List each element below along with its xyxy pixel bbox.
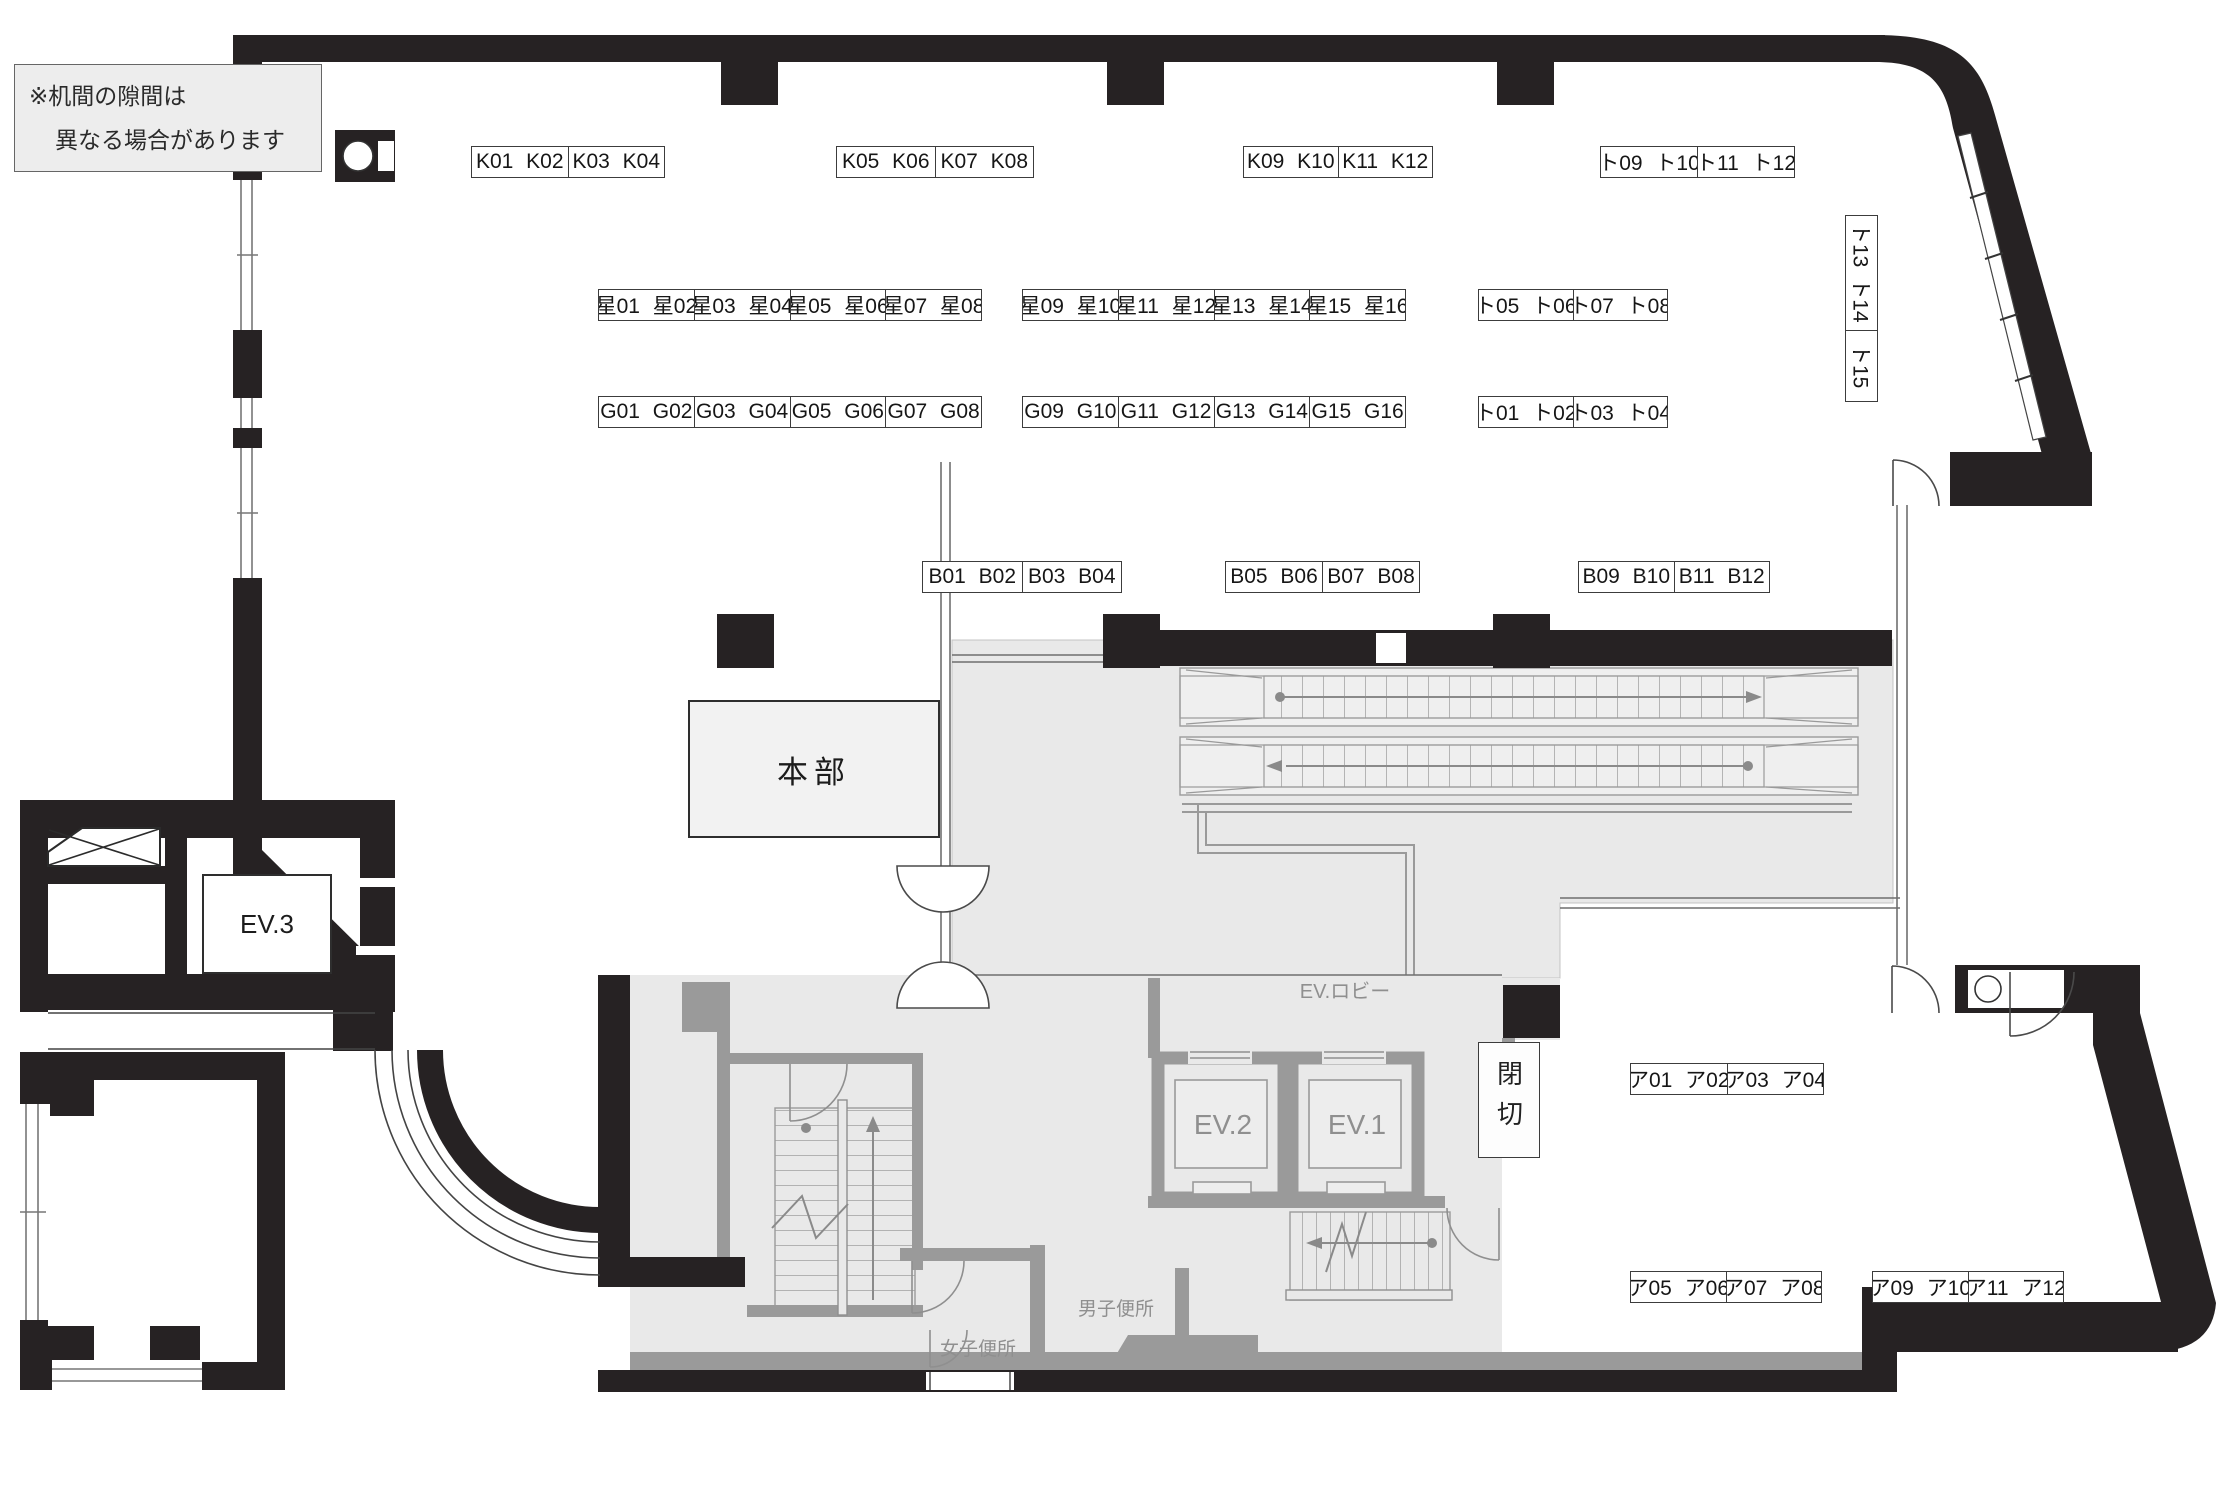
- booth-label: K11 K12: [1338, 147, 1433, 177]
- ev-lobby-label: EV.ロビー: [1280, 975, 1410, 1004]
- floor-plan: ※机間の隙間は 異なる場合があります 本部 EV.3 EV.2 EV.1 閉切 …: [0, 0, 2239, 1496]
- booth-label: B05 B06: [1226, 562, 1322, 592]
- booth-label: G03 G04: [694, 397, 790, 427]
- booth-label: ト01 ト02: [1479, 397, 1573, 427]
- booth-label: 星03 星04: [694, 290, 790, 320]
- booth-label: ア07 ア08: [1726, 1272, 1822, 1302]
- label-group-B01-B04: B01 B02B03 B04: [922, 561, 1122, 593]
- label-group-to05-to08: ト05 ト06ト07 ト08: [1478, 289, 1668, 321]
- booth-label: G01 G02: [599, 397, 694, 427]
- label-group-B05-B08: B05 B06B07 B08: [1225, 561, 1420, 593]
- booth-label: ア05 ア06: [1631, 1272, 1726, 1302]
- note-line-1: ※机間の隙間は: [29, 75, 307, 119]
- mens-toilet-label: 男子便所: [1056, 1294, 1176, 1321]
- label-group-to01-to04: ト01 ト02ト03 ト04: [1478, 396, 1668, 428]
- booth-label: 星05 星06: [790, 290, 886, 320]
- booth-label: 星07 星08: [885, 290, 981, 320]
- booth-label: K07 K08: [935, 147, 1034, 177]
- stairs-east: [1286, 1212, 1452, 1300]
- room-ev1-label: EV.1: [1292, 1105, 1422, 1145]
- label-group-G01-G08: G01 G02G03 G04G05 G06G07 G08: [598, 396, 982, 428]
- booth-label: G13 G14: [1214, 397, 1310, 427]
- room-closed: 閉切: [1478, 1042, 1540, 1158]
- label-group-K05-K08: K05 K06K07 K08: [836, 146, 1034, 178]
- room-honbu-label: 本部: [777, 747, 851, 792]
- label-group-to13-to15: ト13 ト14ト15: [1845, 215, 1878, 402]
- room-ev2-label: EV.2: [1158, 1105, 1288, 1145]
- booth-label: ト05 ト06: [1479, 290, 1573, 320]
- booth-label: ト13 ト14: [1846, 216, 1877, 330]
- booth-label: B09 B10: [1579, 562, 1674, 592]
- label-group-hoshi09-hoshi16: 星09 星10星11 星12星13 星14星15 星16: [1022, 289, 1406, 321]
- label-group-G09-G16: G09 G10G11 G12G13 G14G15 G16: [1022, 396, 1406, 428]
- label-group-B09-B12: B09 B10B11 B12: [1578, 561, 1770, 593]
- booth-label: ア03 ア04: [1727, 1064, 1824, 1094]
- booth-label: B01 B02: [923, 562, 1022, 592]
- booth-label: ア11 ア12: [1968, 1272, 2064, 1302]
- escalator-up: [1180, 668, 1858, 726]
- booth-label: K03 K04: [568, 147, 665, 177]
- booth-label: B07 B08: [1322, 562, 1419, 592]
- booth-label: B11 B12: [1674, 562, 1770, 592]
- booth-label: 星01 星02: [599, 290, 694, 320]
- label-group-a09-a12: ア09 ア10ア11 ア12: [1872, 1271, 2064, 1303]
- curved-core-wall: [430, 1050, 600, 1220]
- booth-label: ア01 ア02: [1631, 1064, 1727, 1094]
- label-group-to09-to12: ト09 ト10ト11 ト12: [1600, 146, 1795, 178]
- booth-label: 星13 星14: [1214, 290, 1310, 320]
- booth-label: 星09 星10: [1023, 290, 1118, 320]
- booth-label: K01 K02: [472, 147, 568, 177]
- stairs-main: [772, 1100, 915, 1315]
- booth-label: G09 G10: [1023, 397, 1118, 427]
- escalator-down: [1180, 737, 1858, 795]
- booth-label: ト07 ト08: [1573, 290, 1668, 320]
- booth-label: ト15: [1846, 330, 1877, 402]
- label-group-K09-K12: K09 K10K11 K12: [1243, 146, 1433, 178]
- booth-label: G05 G06: [790, 397, 886, 427]
- room-ev3: EV.3: [202, 874, 332, 974]
- booth-label: K05 K06: [837, 147, 935, 177]
- booth-label: G07 G08: [885, 397, 981, 427]
- booth-label: ア09 ア10: [1873, 1272, 1968, 1302]
- booth-label: G11 G12: [1118, 397, 1214, 427]
- womens-toilet-label: 女子便所: [918, 1334, 1038, 1361]
- room-honbu: 本部: [688, 700, 940, 838]
- note-box: ※机間の隙間は 異なる場合があります: [14, 64, 322, 172]
- label-group-hoshi01-hoshi08: 星01 星02星03 星04星05 星06星07 星08: [598, 289, 982, 321]
- booth-label: ト09 ト10: [1601, 147, 1697, 177]
- booth-label: K09 K10: [1244, 147, 1338, 177]
- label-group-a01-a04: ア01 ア02ア03 ア04: [1630, 1063, 1824, 1095]
- booth-label: ト11 ト12: [1697, 147, 1794, 177]
- booth-label: ト03 ト04: [1573, 397, 1668, 427]
- booth-label: 星15 星16: [1309, 290, 1405, 320]
- label-group-a05-a08: ア05 ア06ア07 ア08: [1630, 1271, 1822, 1303]
- booth-label: 星11 星12: [1118, 290, 1214, 320]
- booth-label: B03 B04: [1022, 562, 1122, 592]
- booth-label: G15 G16: [1309, 397, 1405, 427]
- room-ev3-label: EV.3: [240, 909, 294, 940]
- note-line-2: 異なる場合があります: [29, 119, 307, 163]
- label-group-K01-K04: K01 K02K03 K04: [471, 146, 665, 178]
